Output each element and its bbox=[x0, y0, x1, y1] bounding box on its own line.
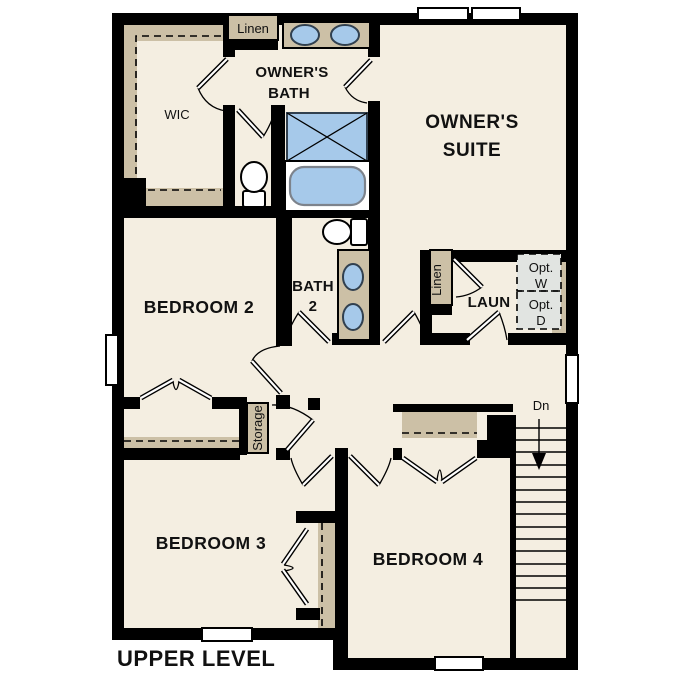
opt-washer-label-2: W bbox=[535, 276, 548, 291]
bedroom4-closet-shelf bbox=[402, 412, 477, 438]
owners-bath-label-1: OWNER'S bbox=[255, 64, 328, 81]
owners-bath-label-2: BATH bbox=[268, 85, 310, 102]
bath2-sink-top bbox=[343, 264, 363, 290]
wic-shelf-left bbox=[124, 25, 137, 190]
hall-window bbox=[566, 355, 578, 403]
owners-suite-window-right bbox=[472, 8, 520, 20]
bedroom3-closet-shelf bbox=[318, 523, 335, 628]
wic-label: WIC bbox=[164, 107, 189, 122]
owners-suite-label-2: SUITE bbox=[443, 140, 501, 161]
laundry-linen-label: Linen bbox=[429, 264, 444, 296]
opt-dryer-label-1: Opt. bbox=[529, 297, 554, 312]
toilet-wc-tank bbox=[243, 191, 265, 207]
laundry-label: LAUN bbox=[468, 294, 511, 311]
opt-dryer-label-2: D bbox=[536, 313, 545, 328]
toilet-bath2-tank bbox=[351, 219, 367, 245]
bedroom2-label: BEDROOM 2 bbox=[144, 297, 254, 317]
bath2-sink-bottom bbox=[343, 304, 363, 330]
storage-label: Storage bbox=[250, 405, 265, 451]
owners-suite-window-left bbox=[418, 8, 468, 20]
toilet-wc-bowl bbox=[241, 162, 267, 192]
floor-plan-drawing: WIC Linen OWNER'S BATH OWNER'S SUITE BED… bbox=[0, 0, 687, 687]
toilet-bath2-bowl bbox=[323, 220, 351, 244]
bedroom4-window bbox=[435, 657, 483, 670]
floor-plan-page: WIC Linen OWNER'S BATH OWNER'S SUITE BED… bbox=[0, 0, 687, 687]
stairs-down-label: Dn bbox=[533, 398, 550, 413]
bath2-label-1: BATH bbox=[292, 278, 334, 295]
owners-bath-sink-right bbox=[331, 25, 359, 45]
bedroom3-label: BEDROOM 3 bbox=[156, 533, 266, 553]
plan-title: UPPER LEVEL bbox=[117, 646, 275, 671]
wic-shelf-top bbox=[124, 25, 223, 41]
bedroom2-window bbox=[106, 335, 118, 385]
owners-bath-sink-left bbox=[291, 25, 319, 45]
bedroom3-window bbox=[202, 628, 252, 641]
bath2-label-2: 2 bbox=[309, 298, 318, 315]
linen-top-label: Linen bbox=[237, 21, 269, 36]
bedroom4-label: BEDROOM 4 bbox=[373, 549, 483, 569]
opt-washer-label-1: Opt. bbox=[529, 260, 554, 275]
owners-suite-label-1: OWNER'S bbox=[425, 112, 519, 133]
bathtub bbox=[290, 167, 365, 205]
